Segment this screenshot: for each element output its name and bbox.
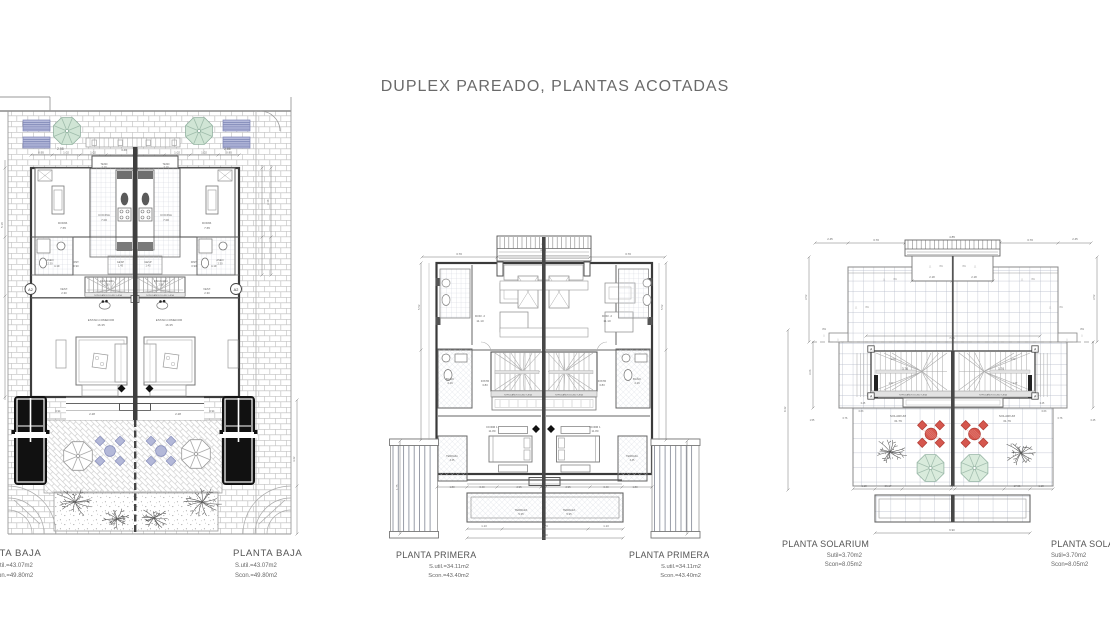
- svg-text:0.95: 0.95: [38, 151, 44, 155]
- svg-text:0.45: 0.45: [861, 403, 866, 405]
- svg-text:17.36: 17.36: [1014, 484, 1021, 488]
- svg-text:11.10: 11.10: [603, 319, 611, 323]
- svg-text:11.80: 11.80: [591, 429, 598, 433]
- svg-text:ESCALERA: ESCALERA: [154, 279, 168, 283]
- svg-text:PLANTA BAJA: PLANTA BAJA: [233, 548, 302, 559]
- svg-text:4.42: 4.42: [292, 456, 296, 462]
- svg-text:2.95: 2.95: [565, 485, 571, 489]
- svg-text:31.76: 31.76: [1003, 419, 1011, 423]
- svg-text:2.28: 2.28: [89, 412, 95, 416]
- svg-text:3.52: 3.52: [804, 294, 808, 300]
- svg-text:3.70: 3.70: [1027, 238, 1033, 242]
- svg-text:TERRAZA: TERRAZA: [446, 455, 458, 458]
- svg-text:7.65: 7.65: [204, 226, 210, 230]
- svg-text:0.90: 0.90: [73, 264, 79, 268]
- svg-text:A2: A2: [28, 288, 33, 292]
- svg-text:COCINA: COCINA: [98, 213, 110, 217]
- svg-text:N PELDAÑOS 18+85L 9+85A: N PELDAÑOS 18+85L 9+85A: [555, 394, 583, 397]
- svg-text:N PELDAÑOS 18+85L 9+85A: N PELDAÑOS 18+85L 9+85A: [94, 294, 122, 297]
- svg-text:1.02: 1.02: [90, 151, 96, 155]
- svg-text:DIST.: DIST.: [191, 260, 198, 264]
- svg-text:3.46: 3.46: [121, 148, 127, 152]
- svg-text:3.76: 3.76: [998, 367, 1004, 371]
- svg-text:1.55: 1.55: [810, 419, 815, 422]
- svg-text:3.35: 3.35: [450, 459, 455, 462]
- svg-text:COCINA: COCINA: [160, 213, 172, 217]
- svg-text:2.80: 2.80: [158, 283, 164, 287]
- svg-text:PLANTA PRIMERA: PLANTA PRIMERA: [629, 550, 709, 560]
- svg-text:0.76: 0.76: [1058, 417, 1063, 420]
- svg-text:4.85: 4.85: [949, 235, 955, 239]
- svg-text:4.54: 4.54: [949, 484, 955, 488]
- svg-text:2.80: 2.80: [104, 283, 110, 287]
- svg-text:3.83: 3.83: [482, 383, 488, 387]
- svg-text:TERRAZA: TERRAZA: [563, 508, 576, 512]
- svg-text:Scon.=49.80m2: Scon.=49.80m2: [235, 573, 278, 579]
- svg-text:0.45: 0.45: [1040, 403, 1045, 405]
- svg-text:DUPLEX PAREADO, PLANTAS ACOTAD: DUPLEX PAREADO, PLANTAS ACOTADAS: [381, 78, 730, 95]
- svg-text:N PELDAÑOS 18+85L 9+85A: N PELDAÑOS 18+85L 9+85A: [146, 294, 174, 297]
- svg-text:TERRAZA: TERRAZA: [515, 508, 528, 512]
- svg-text:16.35: 16.35: [165, 323, 173, 327]
- svg-text:DORM.: DORM.: [58, 221, 68, 225]
- svg-text:Sutil=3.70m2: Sutil=3.70m2: [1051, 553, 1087, 559]
- svg-text:5.35: 5.35: [518, 512, 524, 516]
- svg-text:5.52: 5.52: [417, 304, 421, 310]
- svg-text:0.45: 0.45: [1091, 419, 1096, 422]
- svg-text:5.35: 5.35: [566, 512, 572, 516]
- svg-text:3.70: 3.70: [625, 252, 631, 256]
- svg-text:4.19: 4.19: [211, 264, 217, 268]
- svg-text:11.10: 11.10: [476, 319, 484, 323]
- svg-text:3.70: 3.70: [873, 238, 879, 242]
- svg-text:1.02: 1.02: [63, 151, 69, 155]
- svg-text:N PELDAÑOS 18+85L 9+85A: N PELDAÑOS 18+85L 9+85A: [979, 394, 1007, 397]
- svg-text:7.00: 7.00: [542, 533, 548, 537]
- svg-text:4.19: 4.19: [447, 381, 453, 385]
- svg-text:1.13: 1.13: [603, 524, 609, 528]
- svg-text:2.30: 2.30: [204, 291, 210, 295]
- svg-text:TERRAZA: TERRAZA: [626, 455, 638, 458]
- svg-text:2.18: 2.18: [929, 275, 935, 279]
- svg-text:PLANTA PRIMERA: PLANTA PRIMERA: [396, 550, 476, 560]
- svg-text:2.30: 2.30: [47, 262, 53, 266]
- svg-text:4.73: 4.73: [542, 524, 548, 528]
- svg-text:7.65: 7.65: [60, 226, 66, 230]
- svg-text:Scon=8.05m2: Scon=8.05m2: [1051, 562, 1089, 568]
- svg-text:1.00: 1.00: [1011, 358, 1016, 361]
- svg-text:2.18: 2.18: [971, 275, 977, 279]
- svg-text:3.38: 3.38: [266, 199, 270, 205]
- svg-text:S.util.=34.11m2: S.util.=34.11m2: [661, 564, 701, 570]
- svg-text:ESTAR-COMEDOR: ESTAR-COMEDOR: [156, 318, 183, 322]
- svg-text:06.17: 06.17: [885, 484, 892, 488]
- svg-text:4.19: 4.19: [634, 381, 640, 385]
- svg-text:0.94: 0.94: [56, 410, 61, 413]
- svg-text:4.19: 4.19: [54, 264, 60, 268]
- svg-text:0.76: 0.76: [843, 417, 848, 420]
- svg-text:3.66: 3.66: [808, 369, 812, 375]
- svg-text:PLANTA BAJA: PLANTA BAJA: [0, 548, 41, 559]
- svg-text:1.00: 1.00: [891, 358, 896, 361]
- svg-text:7.00: 7.00: [101, 218, 107, 222]
- svg-text:1.80: 1.80: [449, 485, 455, 489]
- svg-text:A2: A2: [234, 288, 239, 292]
- svg-text:ASEO: ASEO: [46, 258, 53, 262]
- svg-text:ASEO: ASEO: [216, 258, 223, 262]
- svg-text:2.28: 2.28: [175, 412, 181, 416]
- svg-text:1.02: 1.02: [201, 151, 207, 155]
- svg-text:N PELDAÑOS 18+85L 9+85A: N PELDAÑOS 18+85L 9+85A: [504, 394, 532, 397]
- svg-text:5.18: 5.18: [0, 222, 4, 228]
- svg-text:Scon.=49.80m2: Scon.=49.80m2: [0, 573, 34, 579]
- svg-text:3.76: 3.76: [902, 367, 908, 371]
- svg-text:0.40: 0.40: [603, 485, 609, 489]
- svg-text:2.95: 2.95: [516, 485, 522, 489]
- svg-text:8.42: 8.42: [783, 406, 787, 412]
- svg-text:2.45: 2.45: [1072, 237, 1078, 241]
- svg-text:Scon=8.05m2: Scon=8.05m2: [825, 562, 863, 568]
- svg-text:1.27: 1.27: [889, 382, 894, 385]
- svg-text:PLANTA SOLARIUM: PLANTA SOLARIUM: [1051, 539, 1110, 549]
- svg-text:Scon.=43.40m2: Scon.=43.40m2: [660, 573, 701, 579]
- svg-text:1.13: 1.13: [481, 524, 487, 528]
- svg-text:2.30: 2.30: [61, 291, 67, 295]
- svg-text:6.90: 6.90: [949, 528, 955, 532]
- svg-text:PLANTA SOLARIUM: PLANTA SOLARIUM: [782, 539, 869, 549]
- svg-text:16.35: 16.35: [97, 323, 105, 327]
- svg-text:1.80: 1.80: [632, 485, 638, 489]
- svg-text:ESTAR-COMEDOR: ESTAR-COMEDOR: [88, 318, 115, 322]
- svg-text:3.35: 3.35: [630, 459, 635, 462]
- svg-text:DORM.: DORM.: [202, 221, 212, 225]
- svg-text:3.83: 3.83: [599, 383, 605, 387]
- svg-text:0.85: 0.85: [226, 151, 232, 155]
- svg-text:7.00: 7.00: [163, 218, 169, 222]
- svg-text:1.02: 1.02: [174, 151, 180, 155]
- svg-text:DOR. 2: DOR. 2: [602, 314, 612, 318]
- svg-text:2.30: 2.30: [217, 262, 223, 266]
- svg-text:3.52: 3.52: [1092, 294, 1096, 300]
- svg-text:SOLARIUM: SOLARIUM: [890, 414, 907, 418]
- svg-text:SOLARIUM: SOLARIUM: [999, 414, 1016, 418]
- svg-text:0.63: 0.63: [1042, 410, 1047, 413]
- svg-text:S.util.=43.07m2: S.util.=43.07m2: [235, 563, 278, 569]
- svg-text:Scon.=43.40m2: Scon.=43.40m2: [428, 573, 469, 579]
- svg-text:0.63: 0.63: [859, 410, 864, 413]
- svg-text:ESCALERA: ESCALERA: [100, 279, 114, 283]
- svg-text:S.util.=43.07m2: S.util.=43.07m2: [0, 563, 34, 569]
- svg-text:11.80: 11.80: [488, 429, 495, 433]
- svg-text:3.70: 3.70: [456, 252, 462, 256]
- svg-text:0.40: 0.40: [479, 485, 485, 489]
- svg-text:2.45: 2.45: [827, 237, 833, 241]
- svg-text:5.52: 5.52: [660, 304, 664, 310]
- svg-text:1.18: 1.18: [1038, 484, 1044, 488]
- svg-text:DOR. 2: DOR. 2: [475, 314, 485, 318]
- svg-text:1.18: 1.18: [861, 484, 867, 488]
- svg-text:Sutil=3.70m2: Sutil=3.70m2: [827, 553, 863, 559]
- svg-text:0.94: 0.94: [210, 410, 215, 413]
- svg-text:S.util.=34.11m2: S.util.=34.11m2: [429, 564, 469, 570]
- svg-text:0.90: 0.90: [191, 264, 197, 268]
- svg-text:1.75: 1.75: [395, 484, 399, 490]
- svg-text:31.76: 31.76: [894, 419, 902, 423]
- svg-text:1.27: 1.27: [1013, 382, 1018, 385]
- svg-text:DIST.: DIST.: [73, 260, 80, 264]
- svg-text:N PELDAÑOS 18+85L 9+85A: N PELDAÑOS 18+85L 9+85A: [899, 394, 927, 397]
